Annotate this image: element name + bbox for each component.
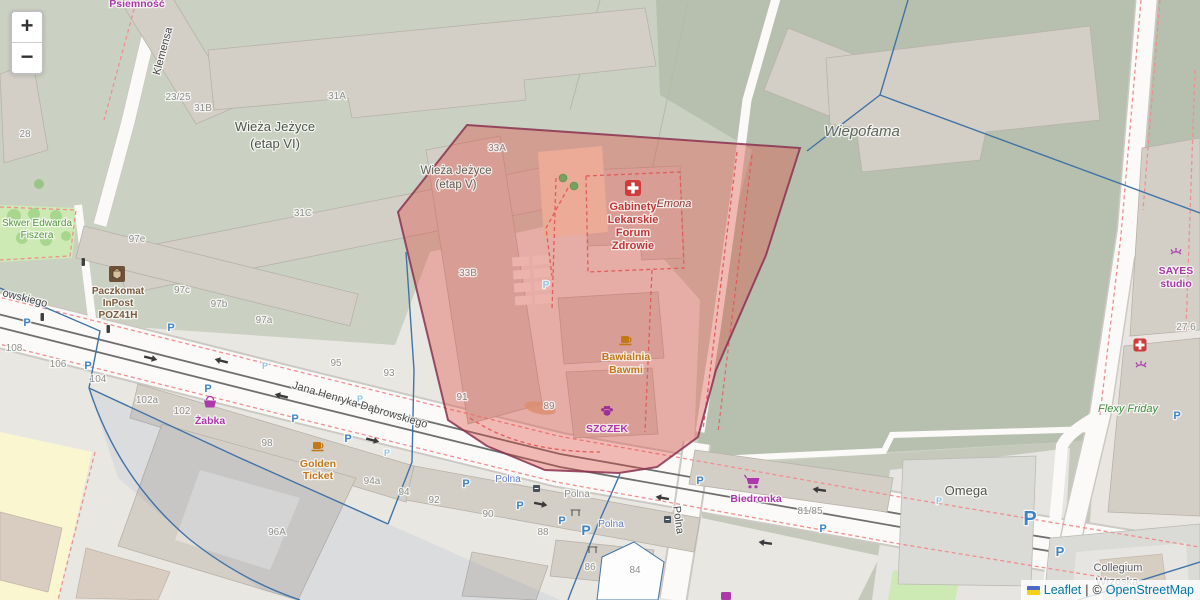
map-canvas[interactable]: P P P P P P P P P P P P P P P P P P P P … <box>0 0 1200 600</box>
poi-label: Flexy Friday <box>1098 403 1159 415</box>
park-label: Skwer Edwarda <box>2 218 72 229</box>
stop-label: Polna <box>564 489 590 500</box>
area-label: Wieża Jeżyce <box>235 119 315 134</box>
poi-label: Emona <box>657 198 692 210</box>
svg-text:108: 108 <box>6 343 23 354</box>
tram-stop-icon <box>664 516 671 523</box>
svg-text:31B: 31B <box>194 103 212 114</box>
svg-text:P: P <box>516 500 523 512</box>
svg-text:33B: 33B <box>459 268 477 279</box>
zoom-in-button[interactable]: + <box>12 12 42 43</box>
medical-icon[interactable] <box>625 180 641 196</box>
poi-label: Paczkomat <box>92 286 145 297</box>
parcel-locker-icon[interactable] <box>109 266 125 282</box>
poi-label: Golden <box>300 458 336 470</box>
svg-text:P: P <box>696 475 703 487</box>
poi-label: Ticket <box>303 470 334 482</box>
poi-label: SAYES <box>1159 265 1194 277</box>
svg-text:P: P <box>558 515 565 527</box>
svg-text:P: P <box>384 448 390 458</box>
svg-text:P: P <box>819 523 826 535</box>
attribution-divider: | <box>1085 583 1088 597</box>
stop-label: Polna <box>495 474 521 485</box>
poi-label: Lekarskie <box>608 214 659 226</box>
svg-text:31C: 31C <box>294 208 312 219</box>
ukraine-flag-icon <box>1027 586 1040 595</box>
svg-text:104: 104 <box>90 374 107 385</box>
osm-link[interactable]: OpenStreetMap <box>1106 583 1194 597</box>
area-label: Wieża Jeżyce <box>421 165 492 177</box>
map-tiles: P P P P P P P P P P P P P P P P P P P P … <box>0 0 1200 600</box>
area-label: Collegium <box>1094 562 1143 574</box>
svg-text:P: P <box>543 280 550 291</box>
svg-text:P: P <box>204 383 211 395</box>
poi-label: Forum <box>616 227 650 239</box>
svg-text:P: P <box>167 322 174 334</box>
stop-label: Polna <box>598 519 624 530</box>
poi-label: Bawmi <box>609 364 643 376</box>
svg-text:90: 90 <box>482 509 494 520</box>
copyright-symbol: © <box>1093 583 1102 597</box>
poi-label: POZ41H <box>99 310 138 321</box>
svg-text:86: 86 <box>584 562 596 573</box>
poi-label: Zdrowie <box>612 240 654 252</box>
svg-text:96A: 96A <box>268 527 286 538</box>
svg-text:P: P <box>936 496 942 506</box>
area-label: Omega <box>945 483 988 498</box>
area-label: Wiepofama <box>824 123 900 140</box>
svg-text:28: 28 <box>19 129 31 140</box>
zoom-control: + − <box>10 10 44 75</box>
svg-text:102a: 102a <box>136 395 159 406</box>
svg-text:P: P <box>462 478 469 490</box>
svg-text:102: 102 <box>174 406 191 417</box>
medical-icon[interactable] <box>1134 339 1147 352</box>
park-label: Fiszera <box>21 230 54 241</box>
svg-text:27.6: 27.6 <box>1176 322 1196 333</box>
svg-text:84: 84 <box>629 565 641 576</box>
svg-text:94a: 94a <box>364 476 381 487</box>
svg-text:97b: 97b <box>211 299 228 310</box>
svg-text:23/25: 23/25 <box>165 92 190 103</box>
svg-text:81/85: 81/85 <box>797 506 822 517</box>
svg-text:P: P <box>581 522 590 538</box>
clothes-shop-icon[interactable] <box>721 592 731 600</box>
svg-text:95: 95 <box>330 358 342 369</box>
svg-text:P: P <box>1173 410 1180 422</box>
svg-text:P: P <box>23 317 30 329</box>
svg-text:P: P <box>262 361 268 371</box>
tram-stop-icon <box>533 485 540 492</box>
svg-text:97e: 97e <box>129 234 146 245</box>
poi-label: InPost <box>103 298 134 309</box>
area-label: (etap VI) <box>250 136 300 151</box>
svg-text:91: 91 <box>456 392 468 403</box>
svg-text:88: 88 <box>537 527 549 538</box>
map-attribution: Leaflet | © OpenStreetMap <box>1021 580 1200 600</box>
svg-text:97c: 97c <box>174 285 190 296</box>
svg-text:106: 106 <box>50 359 67 370</box>
poi-label: Biedronka <box>730 493 782 505</box>
zoom-out-button[interactable]: − <box>12 43 42 73</box>
poi-label: Psiemność <box>109 0 165 10</box>
svg-text:P: P <box>1023 508 1036 530</box>
area-label: (etap V) <box>436 179 477 191</box>
svg-text:33A: 33A <box>488 143 506 154</box>
poi-label: Żabka <box>195 414 226 427</box>
svg-text:92: 92 <box>428 495 440 506</box>
svg-text:98: 98 <box>261 438 273 449</box>
svg-text:97a: 97a <box>256 315 273 326</box>
svg-text:89: 89 <box>543 401 555 412</box>
svg-text:94: 94 <box>398 487 410 498</box>
poi-label: Gabinety <box>609 201 657 213</box>
poi-label: Bawialnia <box>602 351 651 363</box>
svg-text:P: P <box>344 433 351 445</box>
svg-text:93: 93 <box>383 368 395 379</box>
svg-text:31A: 31A <box>328 91 346 102</box>
leaflet-link[interactable]: Leaflet <box>1044 583 1082 597</box>
svg-text:P: P <box>291 413 298 425</box>
svg-text:P: P <box>1056 544 1065 559</box>
poi-label: studio <box>1160 278 1192 290</box>
poi-label: SZCZEK <box>586 423 628 435</box>
svg-text:P: P <box>84 360 91 372</box>
